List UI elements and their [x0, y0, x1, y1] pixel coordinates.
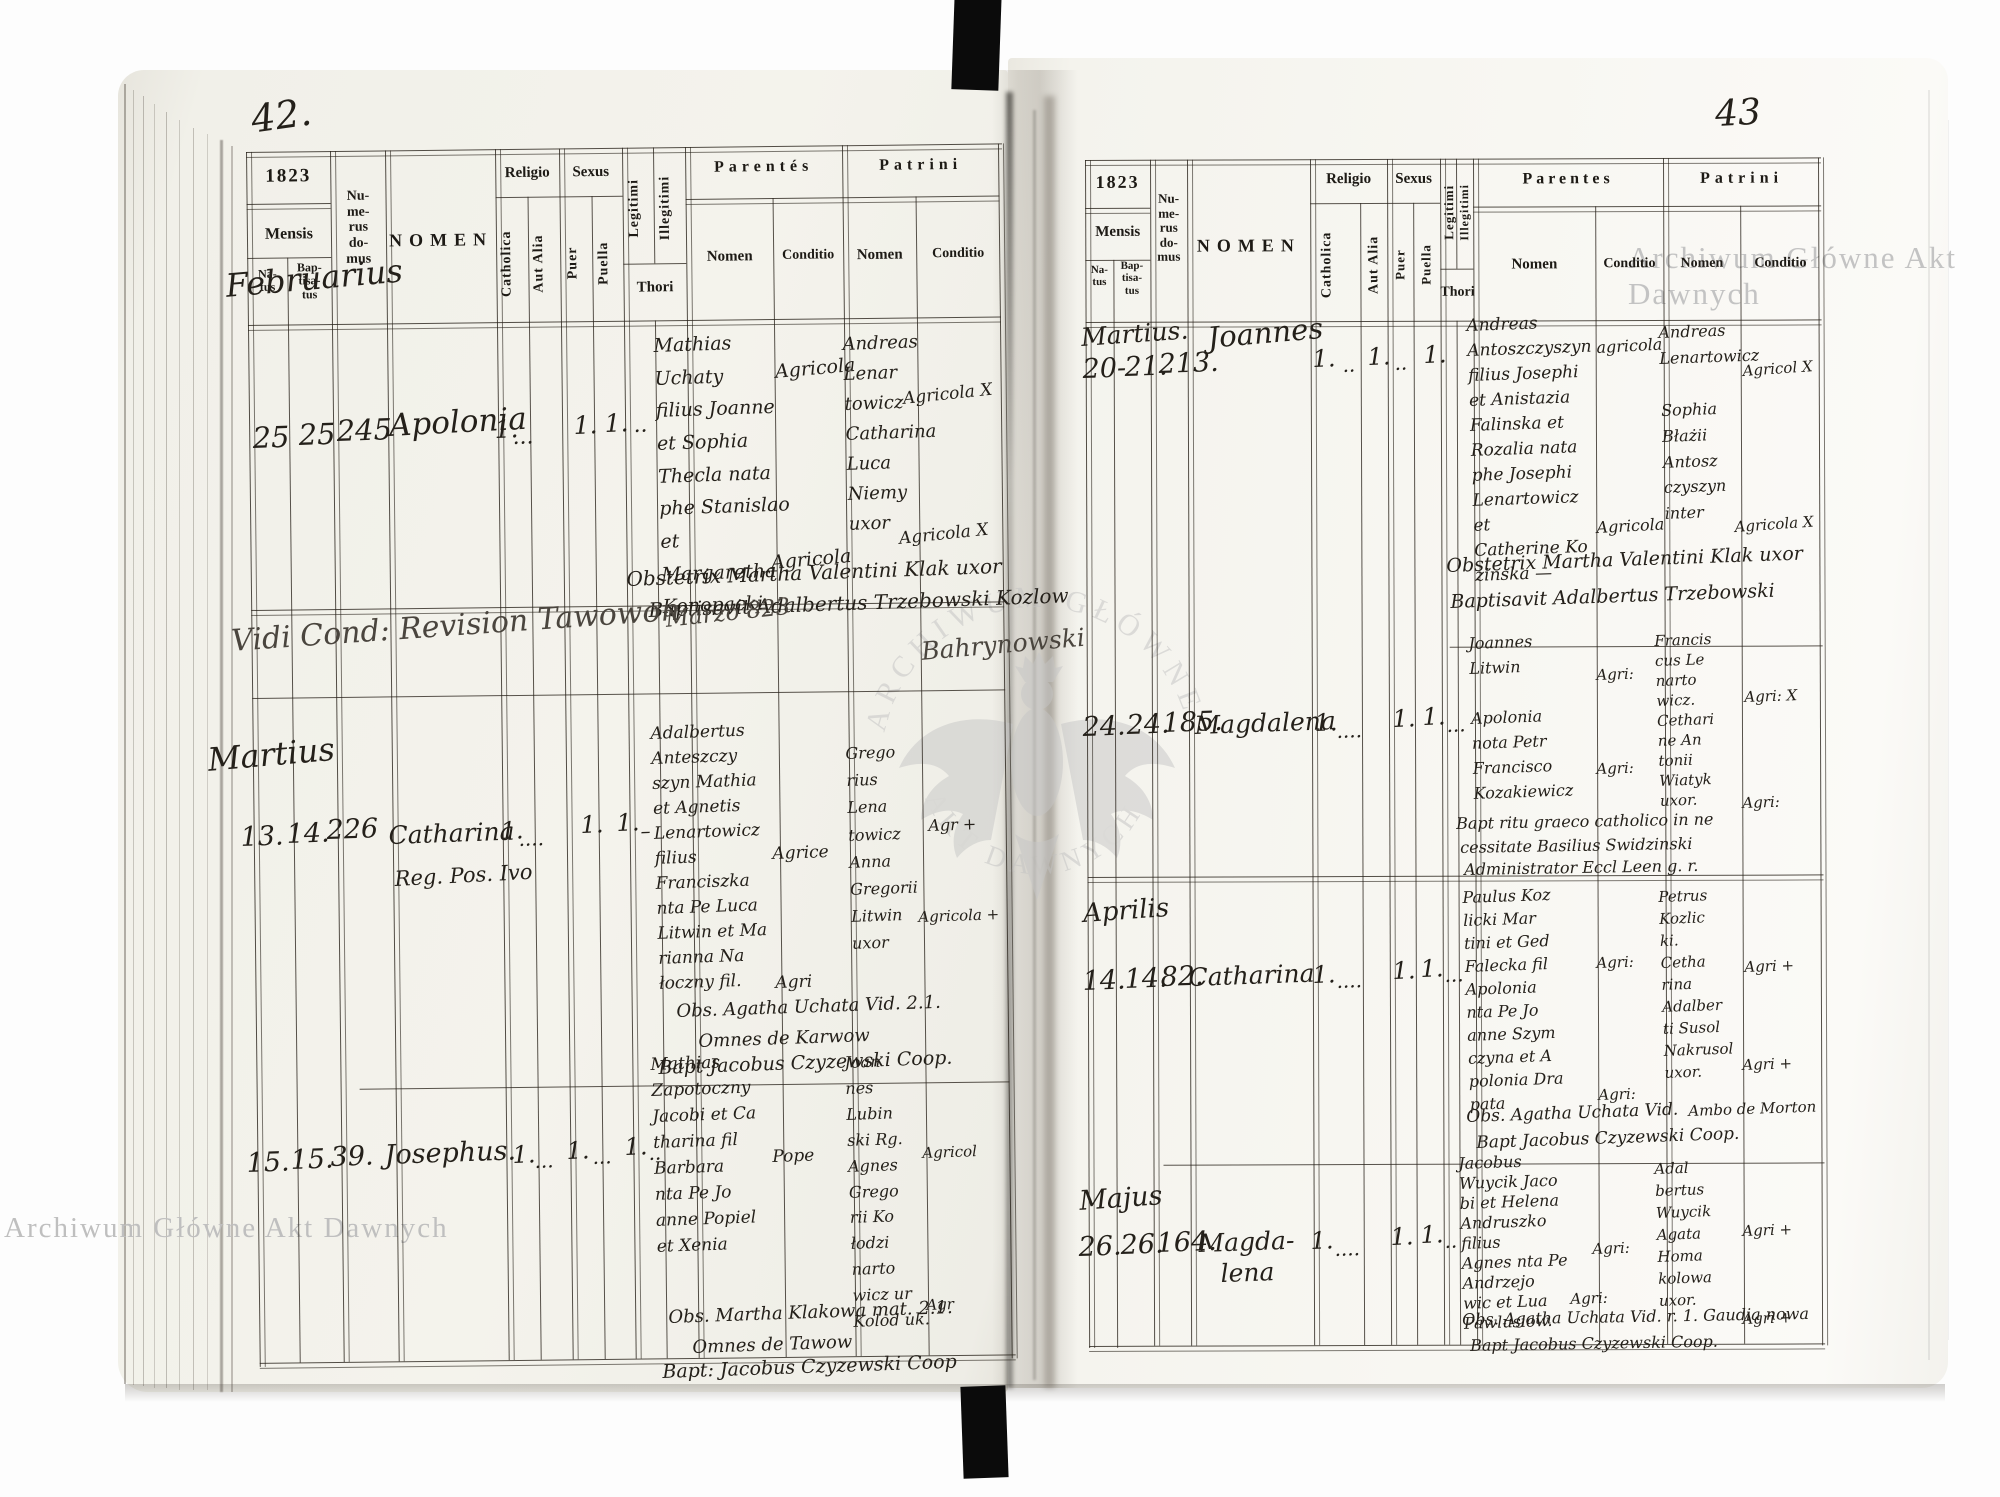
illegitimi-label: Illegitimi	[657, 155, 674, 260]
patrini-conditio-entry: Agricola +	[918, 905, 1000, 927]
thori-label: Thori	[623, 279, 686, 297]
mark-catholica: 1.	[1310, 1225, 1334, 1257]
mark-legitimi: 1.	[1423, 339, 1447, 371]
parentes-label: Parentés	[685, 157, 842, 177]
rite-note: Administrator Eccl Leen g. r.	[1464, 856, 1699, 881]
table-rule	[592, 196, 607, 1359]
table-rule	[623, 263, 686, 265]
book-bottom-shadow	[125, 1384, 1945, 1402]
mark-aut-alia: ....	[1336, 717, 1362, 744]
baptisavit-note: Bapt Jacobus Czyzewski Coop.	[1470, 1332, 1718, 1357]
parentes-conditio-entry: Agri:	[1596, 759, 1634, 780]
record-domus: 39.	[330, 1139, 374, 1176]
patrini-conditio-label: Conditio	[1740, 255, 1820, 271]
table-rule	[622, 148, 642, 1359]
mark-thori: ..	[633, 412, 648, 441]
page-edge-line	[193, 128, 194, 1390]
nomen-label: NOMEN	[1187, 235, 1310, 256]
folio-number: 42.	[248, 88, 315, 145]
patrini-conditio-entry: Agri: X	[1744, 686, 1798, 707]
mark-puella: ...	[592, 1143, 612, 1170]
parentes-entry: Joannes Litwin Apolonia nota Petr Franci…	[1468, 628, 1596, 807]
mark-aut-alia: ...	[512, 423, 534, 452]
parentes-nomen-label: Nomen	[1473, 256, 1595, 273]
table-rule	[1413, 203, 1418, 1345]
parentes-conditio-entry: Agri:	[1592, 1239, 1630, 1260]
mensis-label: Mensis	[1085, 224, 1150, 241]
record-natus: 24.	[1082, 709, 1126, 746]
nomen-label: NOMEN	[386, 229, 496, 250]
mark-aut-alia: ...	[534, 1147, 554, 1174]
parentes-nomen-label: Nomen	[686, 248, 773, 266]
patrini-conditio-entry: Agri +	[1742, 1220, 1792, 1241]
bookmark-strap-bottom	[960, 1385, 1008, 1479]
page-edge-line	[124, 84, 126, 1384]
parentes-label: Parentes	[1473, 170, 1663, 189]
month-heading: Majus	[1078, 1178, 1164, 1219]
mark-puer: 1.	[566, 1135, 590, 1167]
mark-legitimi: 1.	[624, 1131, 648, 1163]
religio-label: Religio	[1310, 171, 1387, 188]
folio-number: 43	[1714, 90, 1762, 139]
parentes-conditio-entry: Agri	[775, 971, 812, 994]
patrini-entry: Petrus Kozlic ki. Cetha rina Adalber ti …	[1658, 883, 1745, 1084]
record-baptisatus: 15.	[290, 1142, 334, 1179]
catholica-label: Catholica	[1319, 213, 1335, 317]
mark-puella: ..	[1394, 350, 1408, 376]
parentes-conditio-entry: Pope	[772, 1145, 815, 1169]
record-natus: 20-	[1082, 350, 1127, 387]
parentes-entry: Paulus Koz licki Mar tini et Ged Falecka…	[1462, 882, 1598, 1117]
numerus-domus-label: Nu- me- rus do- mus	[1150, 192, 1187, 265]
table-rule	[1440, 269, 1473, 271]
aut-alia-label: Aut Alia	[1366, 213, 1382, 317]
legitimi-label: Legitimi	[1441, 163, 1457, 263]
patrini-conditio-entry: Agri +	[1744, 956, 1794, 977]
table-rule	[653, 147, 656, 263]
puer-label: Puer	[565, 208, 582, 318]
natus-label: Na- tus	[1085, 264, 1113, 289]
mensis-label: Mensis	[247, 225, 331, 244]
bookmark-strap-top	[951, 0, 1001, 91]
mark-puella: 1.	[580, 809, 604, 841]
mark-legitimi: 1.	[1422, 701, 1446, 733]
catholica-label: Catholica	[499, 209, 516, 319]
mark-legitimi: 1.	[616, 807, 640, 839]
parentes-conditio-label: Conditio	[1595, 256, 1663, 272]
patrini-conditio-entry: Agr +	[928, 814, 977, 836]
page-edge-line	[143, 96, 144, 1386]
parentes-conditio-entry: Agri:	[1596, 665, 1634, 686]
record-domus: 226	[326, 811, 379, 848]
record-nomen: Magda-	[1198, 1225, 1295, 1261]
patrini-label: Patrini	[842, 155, 999, 175]
mark-catholica: 1.	[512, 1139, 536, 1171]
record-nomen: Catharina	[388, 816, 515, 853]
record-baptisatus: 14.	[286, 816, 330, 853]
year-label: 1823	[1085, 172, 1150, 192]
record-natus: 25	[252, 419, 290, 458]
record-baptisatus: 25	[298, 416, 336, 455]
table-rule	[1310, 203, 1440, 205]
mark-legitimi: 1.	[1420, 1219, 1444, 1251]
puer-label: Puer	[1392, 213, 1408, 317]
year-label: 1823	[246, 165, 330, 187]
parentes-conditio-entry: Agri:	[1596, 953, 1634, 974]
record-domus: 245	[336, 411, 393, 451]
patrini-nomen-label: Nomen	[843, 246, 916, 264]
table-rule	[1085, 208, 1150, 214]
parentes-conditio-entry: Agrice	[772, 841, 829, 865]
rite-note: cessitate Basilius Swidzinski	[1460, 834, 1693, 859]
record-natus: 14.	[1082, 963, 1126, 1000]
patrini-entry: Andreas Lenartowicz Sophia Błażii Antosz…	[1658, 317, 1745, 527]
page-edge-line	[154, 104, 155, 1388]
record-natus: 26.	[1078, 1229, 1122, 1266]
table-rule	[385, 150, 405, 1361]
legitimi-label: Legitimi	[626, 156, 643, 261]
patrini-conditio-entry: Agri +	[1742, 1054, 1792, 1075]
table-rule	[1387, 159, 1397, 1345]
aut-alia-label: Aut Alia	[531, 209, 548, 319]
parentes-entry: Andreas Antoszczyszyn filius Josephi et …	[1466, 310, 1604, 589]
patrini-label: Patrini	[1663, 169, 1820, 187]
table-rule	[1440, 159, 1450, 1345]
patrini-entry: Francis cus Le narto wicz. Cethari ne An…	[1654, 629, 1742, 811]
page-edge-line	[166, 112, 167, 1388]
mark-catholica: 1.	[1312, 343, 1336, 375]
sexus-label: Sexus	[1387, 171, 1440, 188]
puella-label: Puella	[596, 208, 613, 318]
parentes-entry: Mathias Zapotoczny Jacobi et Ca tharina …	[650, 1047, 787, 1259]
patrini-conditio-entry: Agri:	[1742, 793, 1780, 814]
puella-label: Puella	[1418, 213, 1434, 317]
parentes-entry: Adalbertus Anteszczy szyn Mathia et Agne…	[650, 717, 790, 996]
table-rule	[1473, 205, 1821, 212]
patrini-entry: Adal bertus Wuycik Agata Homa kolowa uxo…	[1654, 1155, 1741, 1312]
mark-puella: 1.	[1392, 955, 1416, 987]
parentes-conditio-entry: agricola	[1596, 335, 1663, 359]
mark-puella: 1.	[1392, 703, 1416, 735]
mark-thori: ...	[1444, 961, 1464, 988]
mark-thori: ...	[1446, 711, 1466, 738]
mark-catholica: 1.	[1312, 959, 1336, 991]
parentes-conditio-label: Conditio	[773, 247, 843, 263]
month-heading: Aprilis	[1082, 892, 1170, 932]
mark-puer: 1.	[1367, 341, 1391, 373]
parentes-conditio-entry: Agricola	[1596, 514, 1665, 538]
mark-aut-alia: ..	[1342, 352, 1356, 378]
record-natus: 13.	[240, 819, 284, 856]
baptisatus-label: Bap- tisa- tus	[1113, 260, 1150, 297]
record-nomen: Catharina	[1188, 958, 1315, 995]
record-separator	[1088, 874, 1824, 883]
patrini-entry: Andreas Lenar towicz Catharina Luca Niem…	[842, 327, 941, 540]
table-rule	[247, 203, 331, 210]
patrini-conditio-entry: Agricol	[922, 1142, 977, 1163]
religio-label: Religio	[495, 164, 559, 182]
parentes-conditio-entry: Agri:	[1570, 1289, 1608, 1310]
mark-aut-alia: ....	[1334, 1235, 1360, 1262]
table-rule	[559, 148, 579, 1359]
record-nomen: Josephus.	[384, 1133, 517, 1173]
mark-legitimi: 1.	[1420, 953, 1444, 985]
mark-thori: ..	[1444, 1228, 1458, 1254]
mark-aut-alia: ....	[1336, 967, 1362, 994]
page-edge-line	[133, 90, 134, 1385]
patrini-nomen-label: Nomen	[1663, 256, 1740, 272]
mark-legitimi: 1.	[604, 407, 629, 440]
table-rule	[495, 149, 515, 1360]
page-edge-line	[179, 120, 180, 1390]
mark-aut-alia: ....	[518, 825, 544, 852]
table-rule	[1360, 203, 1365, 1345]
mark-puella: 1.	[1390, 1221, 1414, 1253]
illegitimi-label: Illegitimi	[1457, 163, 1472, 263]
mark-puella: 1.	[573, 409, 598, 442]
mark-thori: –	[640, 818, 651, 844]
sexus-label: Sexus	[559, 164, 622, 182]
register-scan-photo: ARCHIWUM GŁÓWNE AKT DAWNYCH Archiwum Głó…	[0, 0, 2000, 1497]
table-rule	[528, 197, 543, 1360]
patrini-entry: Joan nes Lubin ski Rg. Agnes Grego rii K…	[844, 1047, 944, 1335]
record-nomen-cont: lena	[1220, 1256, 1275, 1290]
mark-catholica: 1.	[1314, 707, 1338, 739]
thori-label: Thori	[1437, 285, 1477, 301]
patrini-conditio-label: Conditio	[916, 245, 1000, 262]
record-natus: 15.	[246, 1145, 290, 1182]
